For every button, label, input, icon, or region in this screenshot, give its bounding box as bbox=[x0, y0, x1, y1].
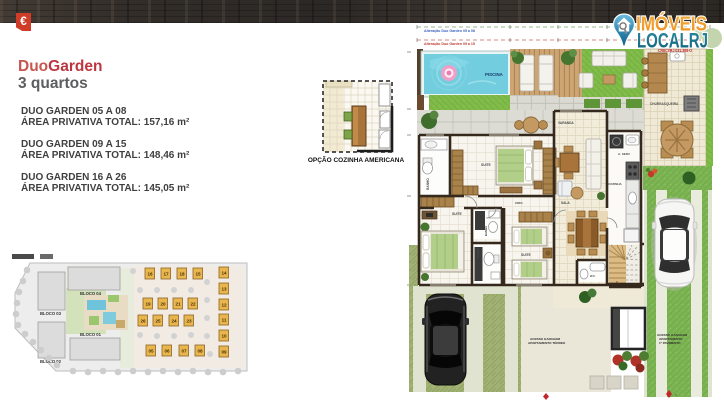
svg-text:PISCINA: PISCINA bbox=[485, 72, 504, 77]
svg-text:22: 22 bbox=[190, 302, 196, 307]
svg-text:A. SERV: A. SERV bbox=[618, 152, 630, 156]
svg-text:SUITE: SUITE bbox=[452, 212, 463, 216]
svg-text:CIRC.: CIRC. bbox=[515, 201, 524, 205]
svg-text:ACESSO GARAGEM APARTAMENTO: ACESSO GARAGEM APARTAMENTO TÉRREO bbox=[528, 337, 566, 345]
svg-text:SUITE: SUITE bbox=[481, 163, 492, 167]
svg-text:BANHO: BANHO bbox=[426, 178, 430, 190]
svg-text:23: 23 bbox=[186, 319, 192, 324]
svg-text:18: 18 bbox=[179, 272, 185, 277]
svg-text:07: 07 bbox=[181, 349, 187, 354]
svg-text:SUITE: SUITE bbox=[521, 253, 532, 257]
svg-text:SALA: SALA bbox=[561, 201, 570, 205]
svg-text:05: 05 bbox=[148, 349, 154, 354]
svg-text:10: 10 bbox=[221, 334, 227, 339]
svg-text:BLOCO 04: BLOCO 04 bbox=[80, 291, 102, 296]
svg-text:25: 25 bbox=[155, 319, 161, 324]
svg-text:N: N bbox=[675, 393, 677, 397]
svg-text:BLOCO 03: BLOCO 03 bbox=[40, 311, 62, 316]
svg-text:CRECI/RJ 031.308-O: CRECI/RJ 031.308-O bbox=[658, 48, 692, 53]
svg-text:Alteração Duo Garden 09 a 15: Alteração Duo Garden 09 a 15 bbox=[424, 42, 475, 46]
svg-text:08: 08 bbox=[197, 349, 203, 354]
svg-text:BANHO: BANHO bbox=[484, 225, 488, 236]
svg-text:Alteração Duo Garden 05 a 08: Alteração Duo Garden 05 a 08 bbox=[424, 29, 475, 33]
svg-text:21: 21 bbox=[175, 302, 181, 307]
svg-text:11: 11 bbox=[222, 318, 227, 323]
svg-text:13: 13 bbox=[221, 287, 227, 292]
svg-text:06: 06 bbox=[164, 349, 170, 354]
svg-text:VARANDA: VARANDA bbox=[558, 121, 574, 125]
svg-text:19: 19 bbox=[145, 302, 151, 307]
svg-text:CHURRASQUEIRA: CHURRASQUEIRA bbox=[650, 102, 679, 106]
svg-text:15: 15 bbox=[195, 272, 201, 277]
svg-text:BANHO: BANHO bbox=[476, 247, 480, 258]
svg-text:17: 17 bbox=[163, 272, 169, 277]
svg-text:W.C.: W.C. bbox=[590, 274, 596, 278]
svg-text:09: 09 bbox=[221, 350, 227, 355]
svg-text:24: 24 bbox=[171, 319, 177, 324]
svg-text:COZINHA: COZINHA bbox=[608, 182, 622, 186]
svg-text:26: 26 bbox=[140, 319, 146, 324]
svg-text:14: 14 bbox=[221, 271, 227, 276]
svg-text:BLOCO 01: BLOCO 01 bbox=[80, 332, 102, 337]
svg-text:12: 12 bbox=[221, 303, 227, 308]
svg-text:16: 16 bbox=[147, 272, 153, 277]
svg-text:20: 20 bbox=[160, 302, 166, 307]
